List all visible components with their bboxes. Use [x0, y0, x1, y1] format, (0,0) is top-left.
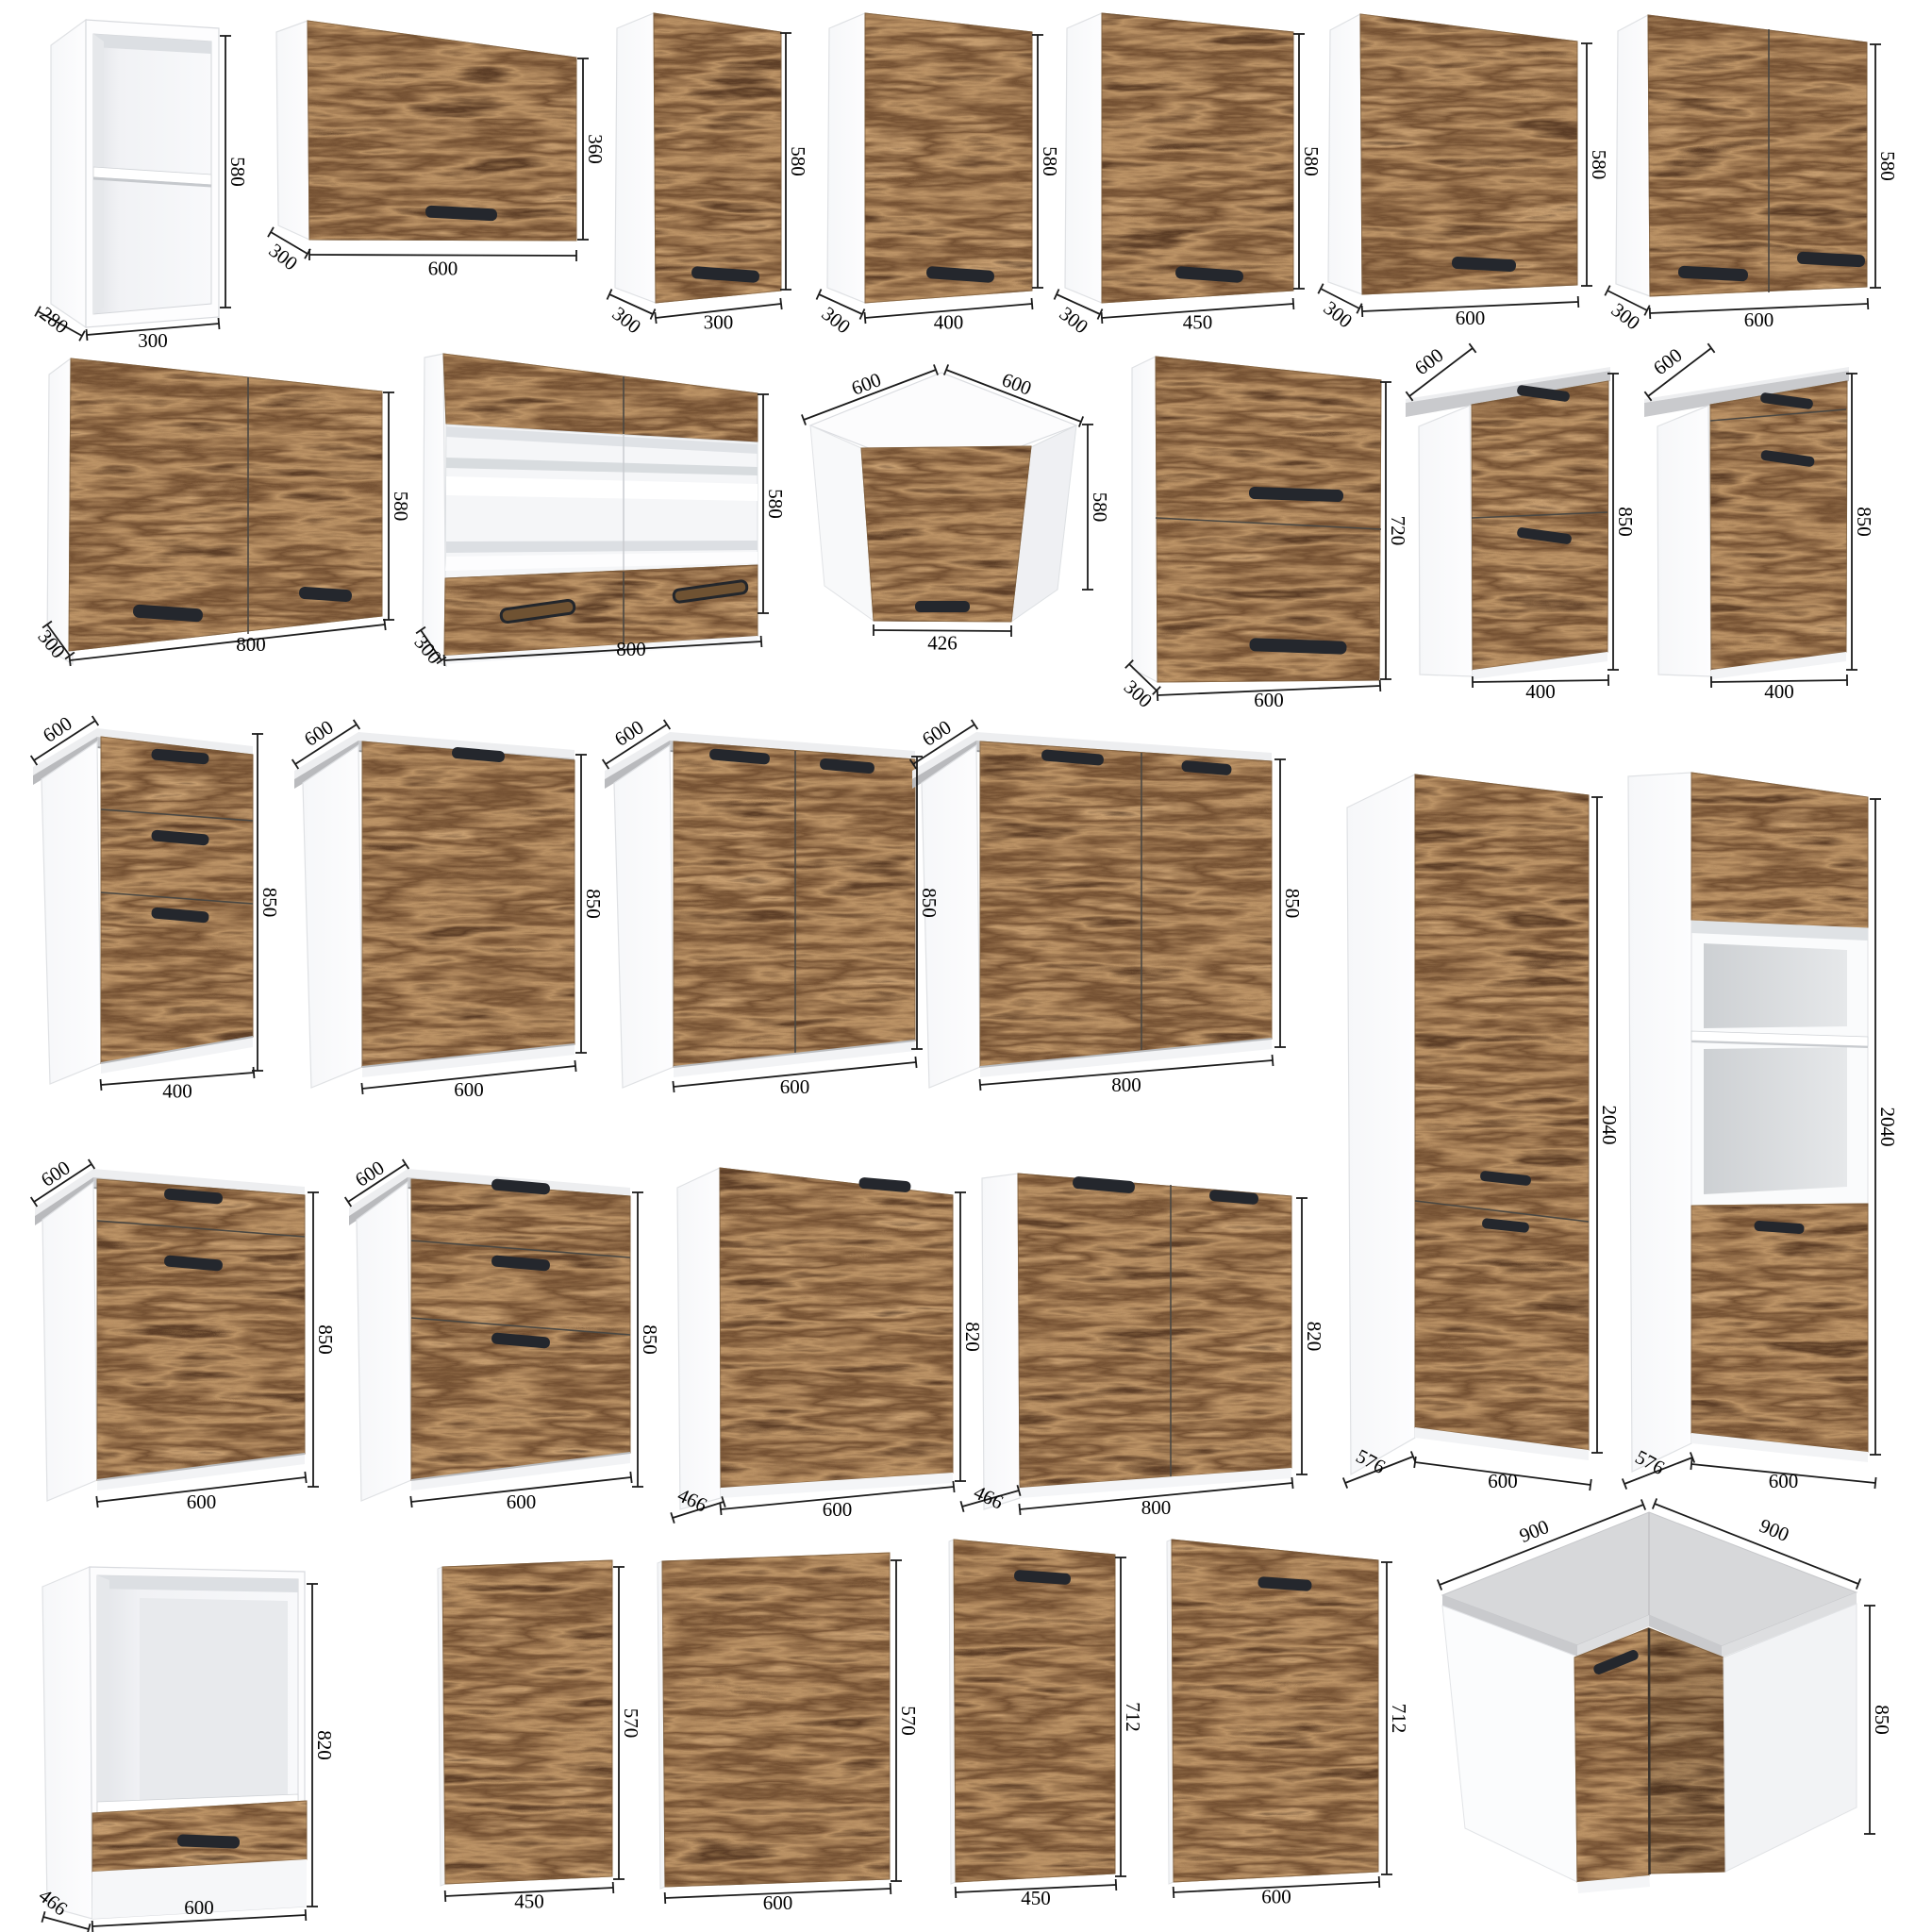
svg-text:580: 580	[764, 489, 787, 519]
svg-text:800: 800	[1111, 1074, 1141, 1096]
svg-text:800: 800	[1141, 1496, 1172, 1519]
svg-text:600: 600	[428, 257, 458, 279]
svg-text:400: 400	[162, 1079, 192, 1102]
svg-text:600: 600	[507, 1491, 537, 1513]
svg-text:580: 580	[1300, 146, 1323, 176]
svg-text:300: 300	[704, 310, 734, 333]
svg-text:580: 580	[390, 491, 412, 522]
svg-text:570: 570	[897, 1706, 920, 1736]
svg-text:570: 570	[620, 1708, 642, 1739]
svg-text:800: 800	[236, 633, 266, 656]
svg-text:850: 850	[1871, 1705, 1893, 1735]
svg-text:600: 600	[1744, 308, 1774, 331]
svg-text:580: 580	[1089, 492, 1111, 523]
svg-text:600: 600	[1261, 1885, 1291, 1907]
svg-text:850: 850	[1614, 507, 1637, 537]
svg-text:850: 850	[1853, 507, 1875, 537]
svg-text:580: 580	[1588, 150, 1610, 180]
svg-text:580: 580	[1039, 146, 1061, 176]
svg-text:580: 580	[787, 146, 809, 176]
svg-text:580: 580	[1876, 151, 1899, 181]
svg-text:2040: 2040	[1876, 1108, 1899, 1147]
svg-text:820: 820	[961, 1322, 984, 1352]
svg-text:820: 820	[313, 1730, 336, 1760]
svg-text:850: 850	[639, 1324, 661, 1355]
svg-text:426: 426	[927, 631, 958, 654]
svg-text:850: 850	[314, 1324, 337, 1355]
svg-text:850: 850	[258, 888, 281, 918]
svg-text:360: 360	[584, 134, 607, 164]
svg-text:800: 800	[616, 638, 646, 660]
svg-text:820: 820	[1303, 1322, 1325, 1352]
svg-text:712: 712	[1388, 1704, 1410, 1734]
svg-text:850: 850	[1281, 889, 1304, 919]
svg-text:600: 600	[1488, 1470, 1518, 1492]
svg-text:450: 450	[514, 1890, 544, 1912]
svg-text:300: 300	[138, 329, 168, 352]
svg-text:2040: 2040	[1598, 1106, 1621, 1145]
svg-text:600: 600	[763, 1891, 793, 1914]
svg-text:580: 580	[226, 157, 249, 187]
svg-text:600: 600	[187, 1491, 217, 1513]
svg-text:400: 400	[1764, 680, 1794, 703]
svg-text:400: 400	[934, 310, 964, 333]
svg-text:600: 600	[184, 1896, 214, 1919]
svg-text:600: 600	[1254, 689, 1284, 711]
svg-text:600: 600	[823, 1498, 853, 1521]
svg-text:400: 400	[1525, 680, 1556, 703]
svg-text:720: 720	[1387, 516, 1409, 546]
svg-text:850: 850	[918, 888, 941, 918]
svg-text:850: 850	[582, 889, 605, 919]
svg-text:450: 450	[1183, 310, 1213, 333]
svg-text:600: 600	[1769, 1470, 1799, 1492]
svg-text:600: 600	[780, 1075, 810, 1098]
svg-text:600: 600	[454, 1078, 484, 1101]
svg-text:450: 450	[1021, 1887, 1051, 1909]
svg-text:600: 600	[1456, 307, 1486, 329]
svg-text:712: 712	[1122, 1702, 1144, 1732]
